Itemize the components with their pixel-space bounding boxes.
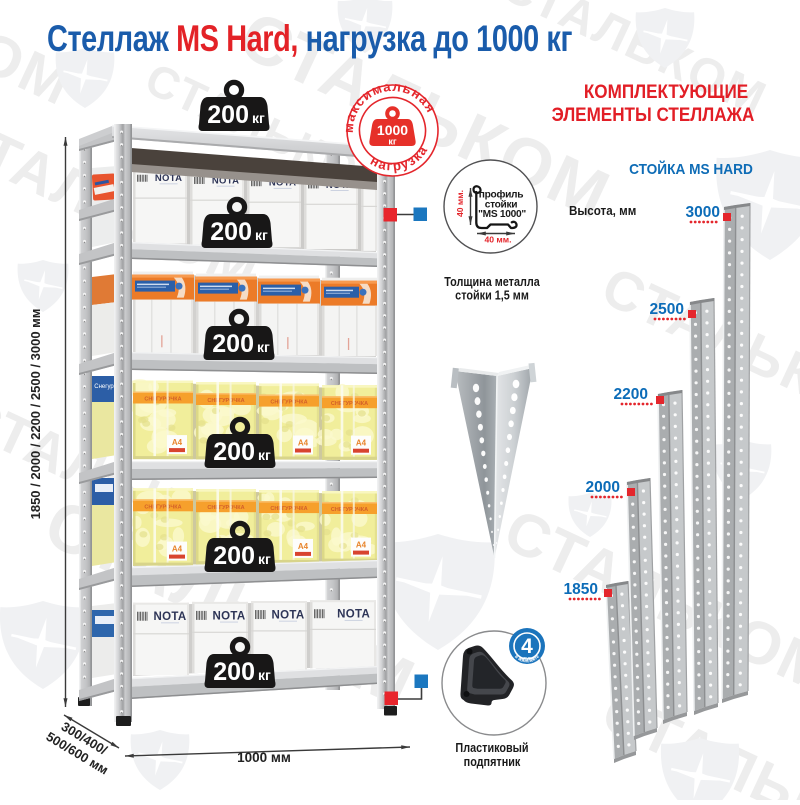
svg-text:200: 200 [213, 438, 255, 466]
svg-text:"MS 1000": "MS 1000" [478, 209, 526, 220]
svg-text:Снегур: Снегур [94, 384, 114, 390]
svg-text:ЭЛЕМЕНТЫ СТЕЛЛАЖА: ЭЛЕМЕНТЫ СТЕЛЛАЖА [552, 104, 755, 125]
svg-text:Высота, мм: Высота, мм [569, 203, 636, 218]
svg-text:кг: кг [257, 339, 270, 355]
svg-text:кг: кг [388, 137, 397, 147]
svg-text:штуки: штуки [520, 657, 535, 662]
svg-text:2200: 2200 [614, 386, 648, 403]
svg-text:A4: A4 [356, 541, 367, 550]
svg-text:кг: кг [255, 227, 268, 243]
svg-text:1850 / 2000 / 2200 / 2500 / 30: 1850 / 2000 / 2200 / 2500 / 3000 мм [28, 309, 43, 520]
svg-text:NOTA: NOTA [154, 611, 187, 623]
svg-text:СНЕГУРОЧКА: СНЕГУРОЧКА [270, 506, 307, 512]
svg-text:СНЕГУРОЧКА: СНЕГУРОЧКА [331, 507, 368, 513]
svg-text:1850: 1850 [564, 581, 598, 598]
svg-text:подпятник: подпятник [464, 755, 521, 769]
svg-text:СНЕГУРОЧКА: СНЕГУРОЧКА [144, 397, 181, 403]
svg-text:1000 мм: 1000 мм [237, 750, 291, 765]
svg-text:A4: A4 [356, 439, 367, 448]
svg-text:A4: A4 [298, 439, 309, 448]
svg-text:200: 200 [212, 330, 254, 358]
svg-text:NOTA: NOTA [337, 609, 370, 621]
svg-text:A4: A4 [298, 542, 309, 551]
svg-text:200: 200 [207, 101, 249, 129]
svg-text:КОМПЛЕКТУЮЩИЕ: КОМПЛЕКТУЮЩИЕ [584, 81, 748, 102]
svg-text:Пластиковый: Пластиковый [455, 741, 528, 755]
svg-text:стойки 1,5 мм: стойки 1,5 мм [455, 289, 529, 303]
svg-text:СНЕГУРОЧКА: СНЕГУРОЧКА [207, 398, 244, 404]
svg-text:СНЕГУРОЧКА: СНЕГУРОЧКА [270, 400, 307, 406]
svg-text:СНЕГУРОЧКА: СНЕГУРОЧКА [144, 504, 181, 510]
svg-text:200: 200 [210, 218, 252, 246]
svg-text:кг: кг [252, 110, 265, 126]
svg-text:200: 200 [213, 658, 255, 686]
svg-text:кг: кг [258, 551, 271, 567]
svg-text:200: 200 [213, 542, 255, 570]
svg-text:A4: A4 [172, 545, 183, 554]
svg-text:кг: кг [258, 667, 271, 683]
svg-text:NOTA: NOTA [272, 610, 305, 622]
svg-text:2500: 2500 [650, 301, 684, 318]
svg-text:A4: A4 [172, 438, 183, 447]
svg-text:3000: 3000 [686, 204, 720, 221]
svg-text:40 мм.: 40 мм. [484, 235, 511, 245]
svg-text:СНЕГУРОЧКА: СНЕГУРОЧКА [331, 401, 368, 407]
svg-text:СНЕГУРОЧКА: СНЕГУРОЧКА [207, 505, 244, 511]
svg-text:4: 4 [521, 635, 533, 658]
svg-text:Толщина металла: Толщина металла [444, 275, 540, 289]
svg-text:2000: 2000 [586, 479, 620, 496]
svg-text:СТОЙКА MS HARD: СТОЙКА MS HARD [629, 159, 753, 178]
svg-text:Стеллаж MS Hard, нагрузка до 1: Стеллаж MS Hard, нагрузка до 1000 кг [47, 19, 572, 60]
svg-text:NOTA: NOTA [213, 610, 246, 622]
svg-text:кг: кг [258, 447, 271, 463]
svg-text:40 мм.: 40 мм. [455, 190, 465, 217]
